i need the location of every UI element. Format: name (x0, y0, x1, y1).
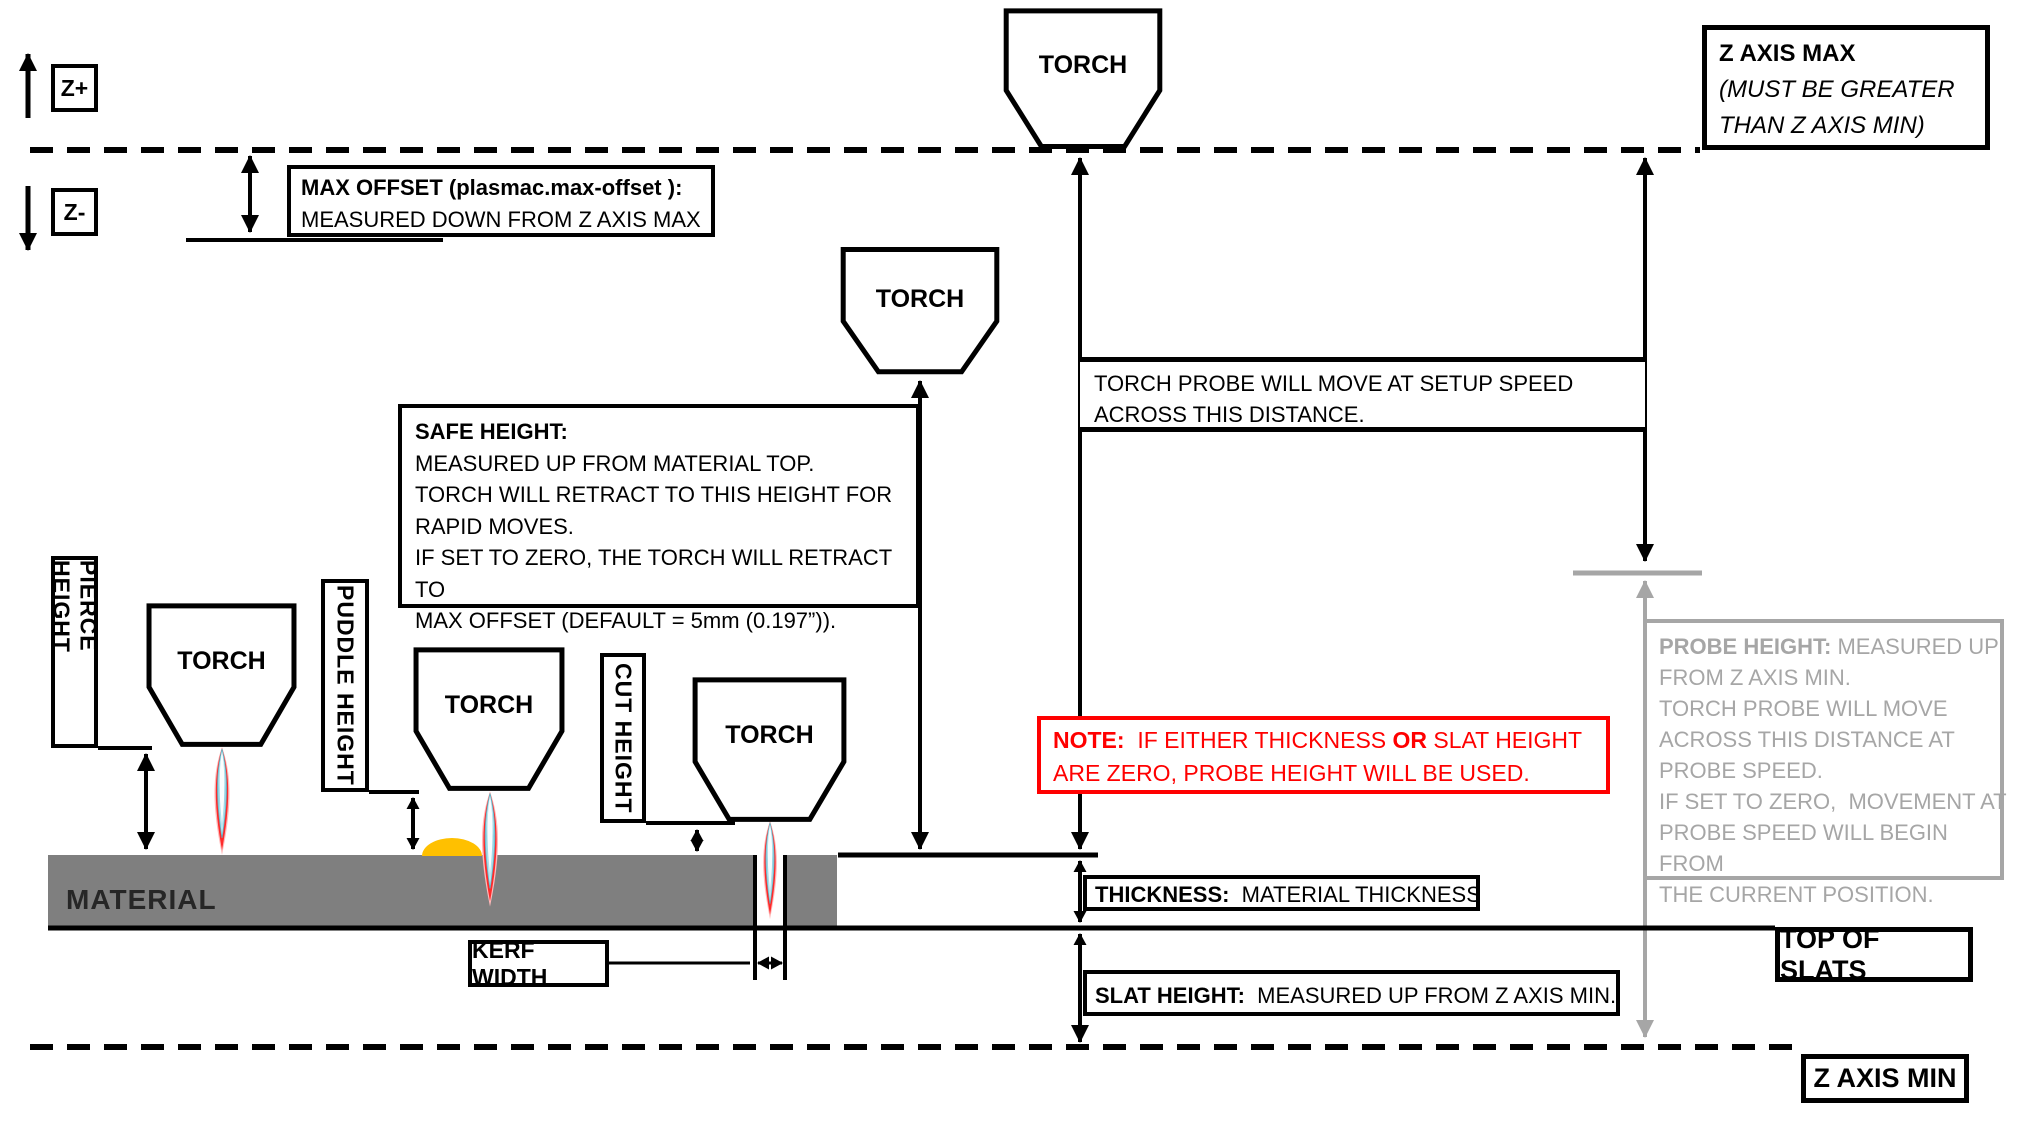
z-axis-max-title: Z AXIS MAX (1719, 36, 1973, 72)
safe-height-box: SAFE HEIGHT: MEASURED UP FROM MATERIAL T… (398, 404, 920, 608)
safe-height-line: IF SET TO ZERO, THE TORCH WILL RETRACT T… (415, 542, 903, 605)
torch-label: TORCH (840, 285, 1000, 314)
plasma-z-axis-diagram: MATERIAL (0, 0, 2038, 1145)
safe-height-line: MEASURED UP FROM MATERIAL TOP. (415, 448, 903, 480)
cut-flame-icon (763, 821, 777, 919)
probe-height-box: PROBE HEIGHT: MEASURED UP FROM Z AXIS MI… (1643, 619, 2004, 880)
torch-label: TORCH (692, 721, 847, 750)
probe-height-title: PROBE HEIGHT: (1659, 634, 1831, 659)
torch-shape (692, 677, 847, 823)
max-offset-title: MAX OFFSET (plasmac.max-offset ): (301, 172, 701, 204)
z-axis-max-note-1: (MUST BE GREATER (1719, 72, 1973, 108)
slat-height-text: MEASURED UP FROM Z AXIS MIN. (1245, 983, 1616, 1008)
kerf-width-box: KERF WIDTH (468, 940, 609, 987)
torch-shape (146, 603, 297, 748)
max-offset-text: MEASURED DOWN FROM Z AXIS MAX (301, 204, 701, 236)
torch-probe-line1: TORCH PROBE WILL MOVE AT SETUP SPEED (1094, 368, 1631, 399)
thickness-title: THICKNESS: (1095, 882, 1229, 907)
torch-label: TORCH (413, 691, 565, 720)
z-plus-box: Z+ (51, 64, 98, 112)
probe-height-line: PROBE SPEED WILL BEGIN FROM (1659, 817, 1988, 879)
torch-at-cut-height: TORCH (692, 677, 847, 823)
probe-height-line: PROBE SPEED. (1659, 755, 1988, 786)
torch-at-z-max: TORCH (1003, 8, 1163, 150)
z-axis-min-label: Z AXIS MIN (1813, 1063, 1956, 1094)
material-label: MATERIAL (66, 884, 217, 916)
slat-height-box: SLAT HEIGHT: MEASURED UP FROM Z AXIS MIN… (1083, 970, 1620, 1016)
cut-height-label: CUT HEIGHT (610, 663, 637, 814)
torch-shape (413, 647, 565, 792)
z-axis-max-note-2: THAN Z AXIS MIN) (1719, 108, 1973, 144)
top-of-slats-box: TOP OF SLATS (1775, 927, 1973, 982)
z-plus-label: Z+ (61, 75, 88, 102)
torch-probe-box: TORCH PROBE WILL MOVE AT SETUP SPEED ACR… (1080, 357, 1645, 432)
puddle-height-label: PUDDLE HEIGHT (332, 585, 359, 786)
torch-at-puddle-height: TORCH (413, 647, 565, 792)
probe-height-line: THE CURRENT POSITION. (1659, 879, 1988, 910)
top-of-slats-label: TOP OF SLATS (1780, 924, 1968, 986)
torch-at-pierce-height: TORCH (146, 603, 297, 748)
z-minus-box: Z- (51, 188, 98, 236)
probe-height-text: MEASURED UP (1831, 634, 1998, 659)
z-axis-max-box: Z AXIS MAX (MUST BE GREATER THAN Z AXIS … (1702, 25, 1990, 150)
torch-label: TORCH (146, 647, 297, 676)
z-axis-min-box: Z AXIS MIN (1801, 1054, 1969, 1103)
puddle-flame-icon (482, 791, 498, 906)
thickness-box: THICKNESS: MATERIAL THICKNESS (1083, 875, 1480, 911)
max-offset-box: MAX OFFSET (plasmac.max-offset ): MEASUR… (287, 165, 715, 237)
puddle-height-label-box: PUDDLE HEIGHT (321, 579, 369, 792)
safe-height-line: TORCH WILL RETRACT TO THIS HEIGHT FOR (415, 479, 903, 511)
molten-puddle (422, 838, 482, 856)
torch-probe-line2: ACROSS THIS DISTANCE. (1094, 399, 1631, 430)
kerf-width-label: KERF WIDTH (472, 937, 605, 991)
pierce-flame-icon (214, 747, 229, 855)
note-text-2: SLAT HEIGHT (1427, 727, 1582, 753)
note-line1: NOTE: IF EITHER THICKNESS OR SLAT HEIGHT (1053, 724, 1594, 757)
note-box: NOTE: IF EITHER THICKNESS OR SLAT HEIGHT… (1037, 716, 1610, 794)
pierce-height-label: PIERCE HEIGHT (48, 560, 102, 744)
probe-height-line: IF SET TO ZERO, MOVEMENT AT (1659, 786, 1988, 817)
thickness-text: MATERIAL THICKNESS (1229, 882, 1480, 907)
probe-height-line: FROM Z AXIS MIN. (1659, 662, 1988, 693)
pierce-height-label-box: PIERCE HEIGHT (51, 556, 98, 748)
torch-at-safe-height: TORCH (840, 247, 1000, 375)
note-bold-or: OR (1393, 727, 1428, 753)
note-text-1: IF EITHER THICKNESS (1125, 727, 1393, 753)
probe-height-line: TORCH PROBE WILL MOVE (1659, 693, 1988, 724)
safe-height-line: MAX OFFSET (DEFAULT = 5mm (0.197”)). (415, 605, 903, 637)
slat-height-title: SLAT HEIGHT: (1095, 983, 1245, 1008)
note-bold-prefix: NOTE: (1053, 727, 1125, 753)
torch-label: TORCH (1003, 51, 1163, 80)
probe-height-line: ACROSS THIS DISTANCE AT (1659, 724, 1988, 755)
note-line2: ARE ZERO, PROBE HEIGHT WILL BE USED. (1053, 757, 1594, 790)
safe-height-title: SAFE HEIGHT: (415, 416, 903, 448)
cut-height-label-box: CUT HEIGHT (600, 653, 646, 823)
safe-height-line: RAPID MOVES. (415, 511, 903, 543)
z-minus-label: Z- (64, 199, 86, 226)
probe-height-line1: PROBE HEIGHT: MEASURED UP (1659, 631, 1988, 662)
